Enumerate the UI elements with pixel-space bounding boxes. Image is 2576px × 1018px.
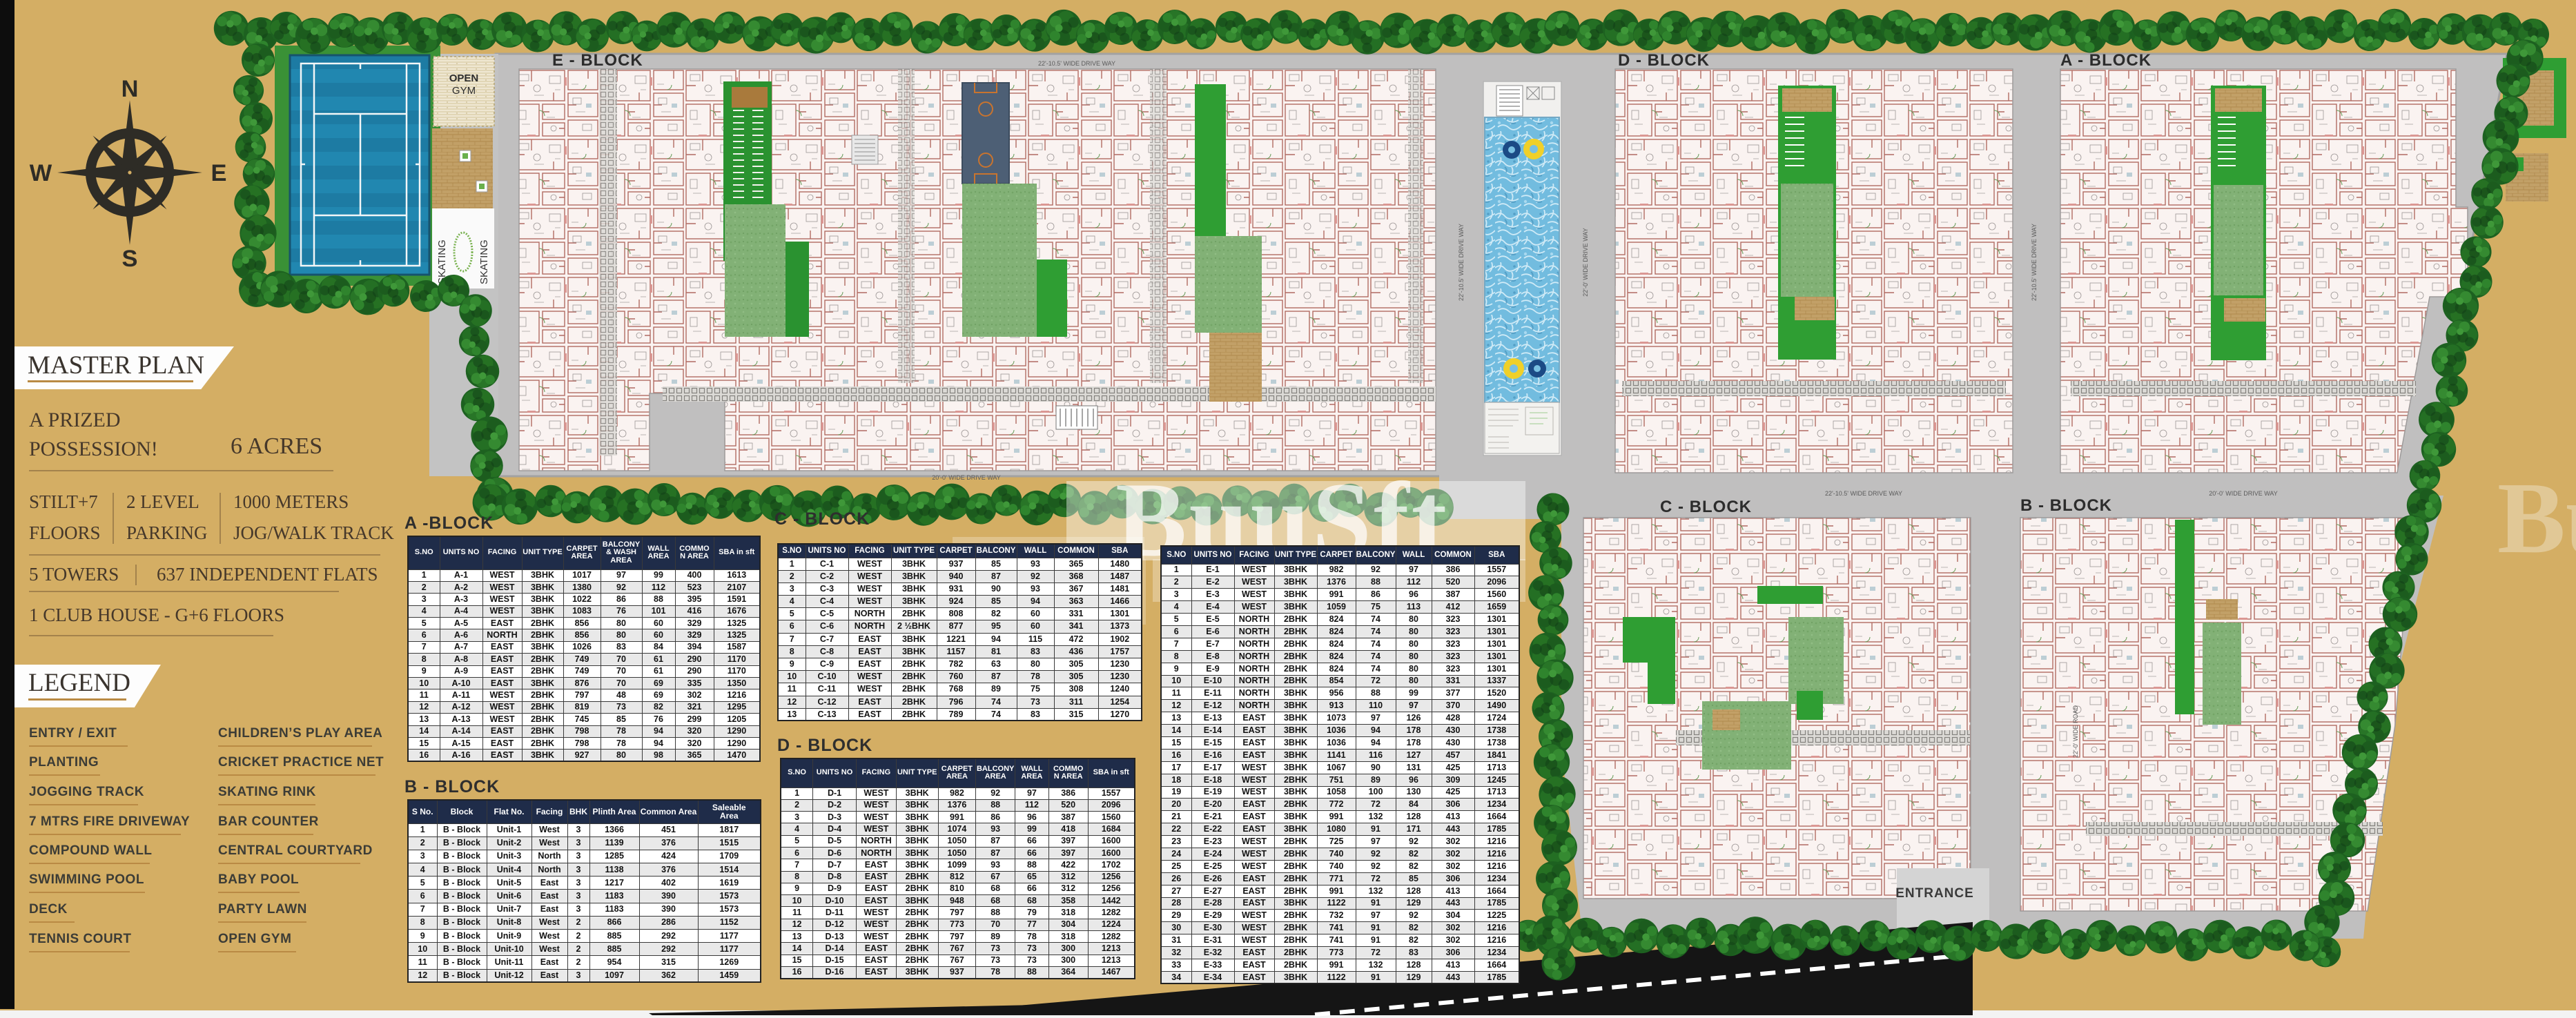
svg-text:22'-10.5' WIDE DRIVE WAY: 22'-10.5' WIDE DRIVE WAY	[1825, 490, 1902, 497]
svg-text:ENTRANCE: ENTRANCE	[1895, 886, 1974, 901]
svg-text:20'-0' WIDE DRIVE WAY: 20'-0' WIDE DRIVE WAY	[932, 474, 1000, 481]
svg-text:E - BLOCK: E - BLOCK	[552, 51, 643, 70]
svg-text:OPEN: OPEN	[449, 72, 479, 84]
svg-text:22'-10.5' WIDE DRIVE WAY: 22'-10.5' WIDE DRIVE WAY	[2031, 224, 2038, 301]
svg-text:22'-0' WIDE ROAD: 22'-0' WIDE ROAD	[2072, 705, 2079, 758]
svg-text:B - BLOCK: B - BLOCK	[2020, 496, 2112, 515]
svg-text:22'-10.5' WIDE DRIVE WAY: 22'-10.5' WIDE DRIVE WAY	[1038, 60, 1115, 67]
svg-text:20'-0' WIDE DRIVE WAY: 20'-0' WIDE DRIVE WAY	[2209, 490, 2277, 497]
svg-text:SKATING: SKATING	[478, 239, 490, 284]
svg-text:D - BLOCK: D - BLOCK	[1618, 51, 1710, 70]
svg-text:N: N	[121, 76, 139, 102]
svg-text:C - BLOCK: C - BLOCK	[1660, 498, 1752, 516]
svg-text:Bu: Bu	[2497, 462, 2576, 575]
svg-text:S: S	[122, 246, 138, 272]
svg-text:22'-0' WIDE DRIVE WAY: 22'-0' WIDE DRIVE WAY	[1582, 228, 1589, 296]
svg-text:A - BLOCK: A - BLOCK	[2060, 51, 2151, 70]
svg-text:22'-10.5' WIDE DRIVE WAY: 22'-10.5' WIDE DRIVE WAY	[1458, 224, 1465, 301]
svg-text:E: E	[211, 160, 227, 186]
svg-text:W: W	[30, 160, 52, 186]
svg-text:GYM: GYM	[452, 85, 476, 97]
